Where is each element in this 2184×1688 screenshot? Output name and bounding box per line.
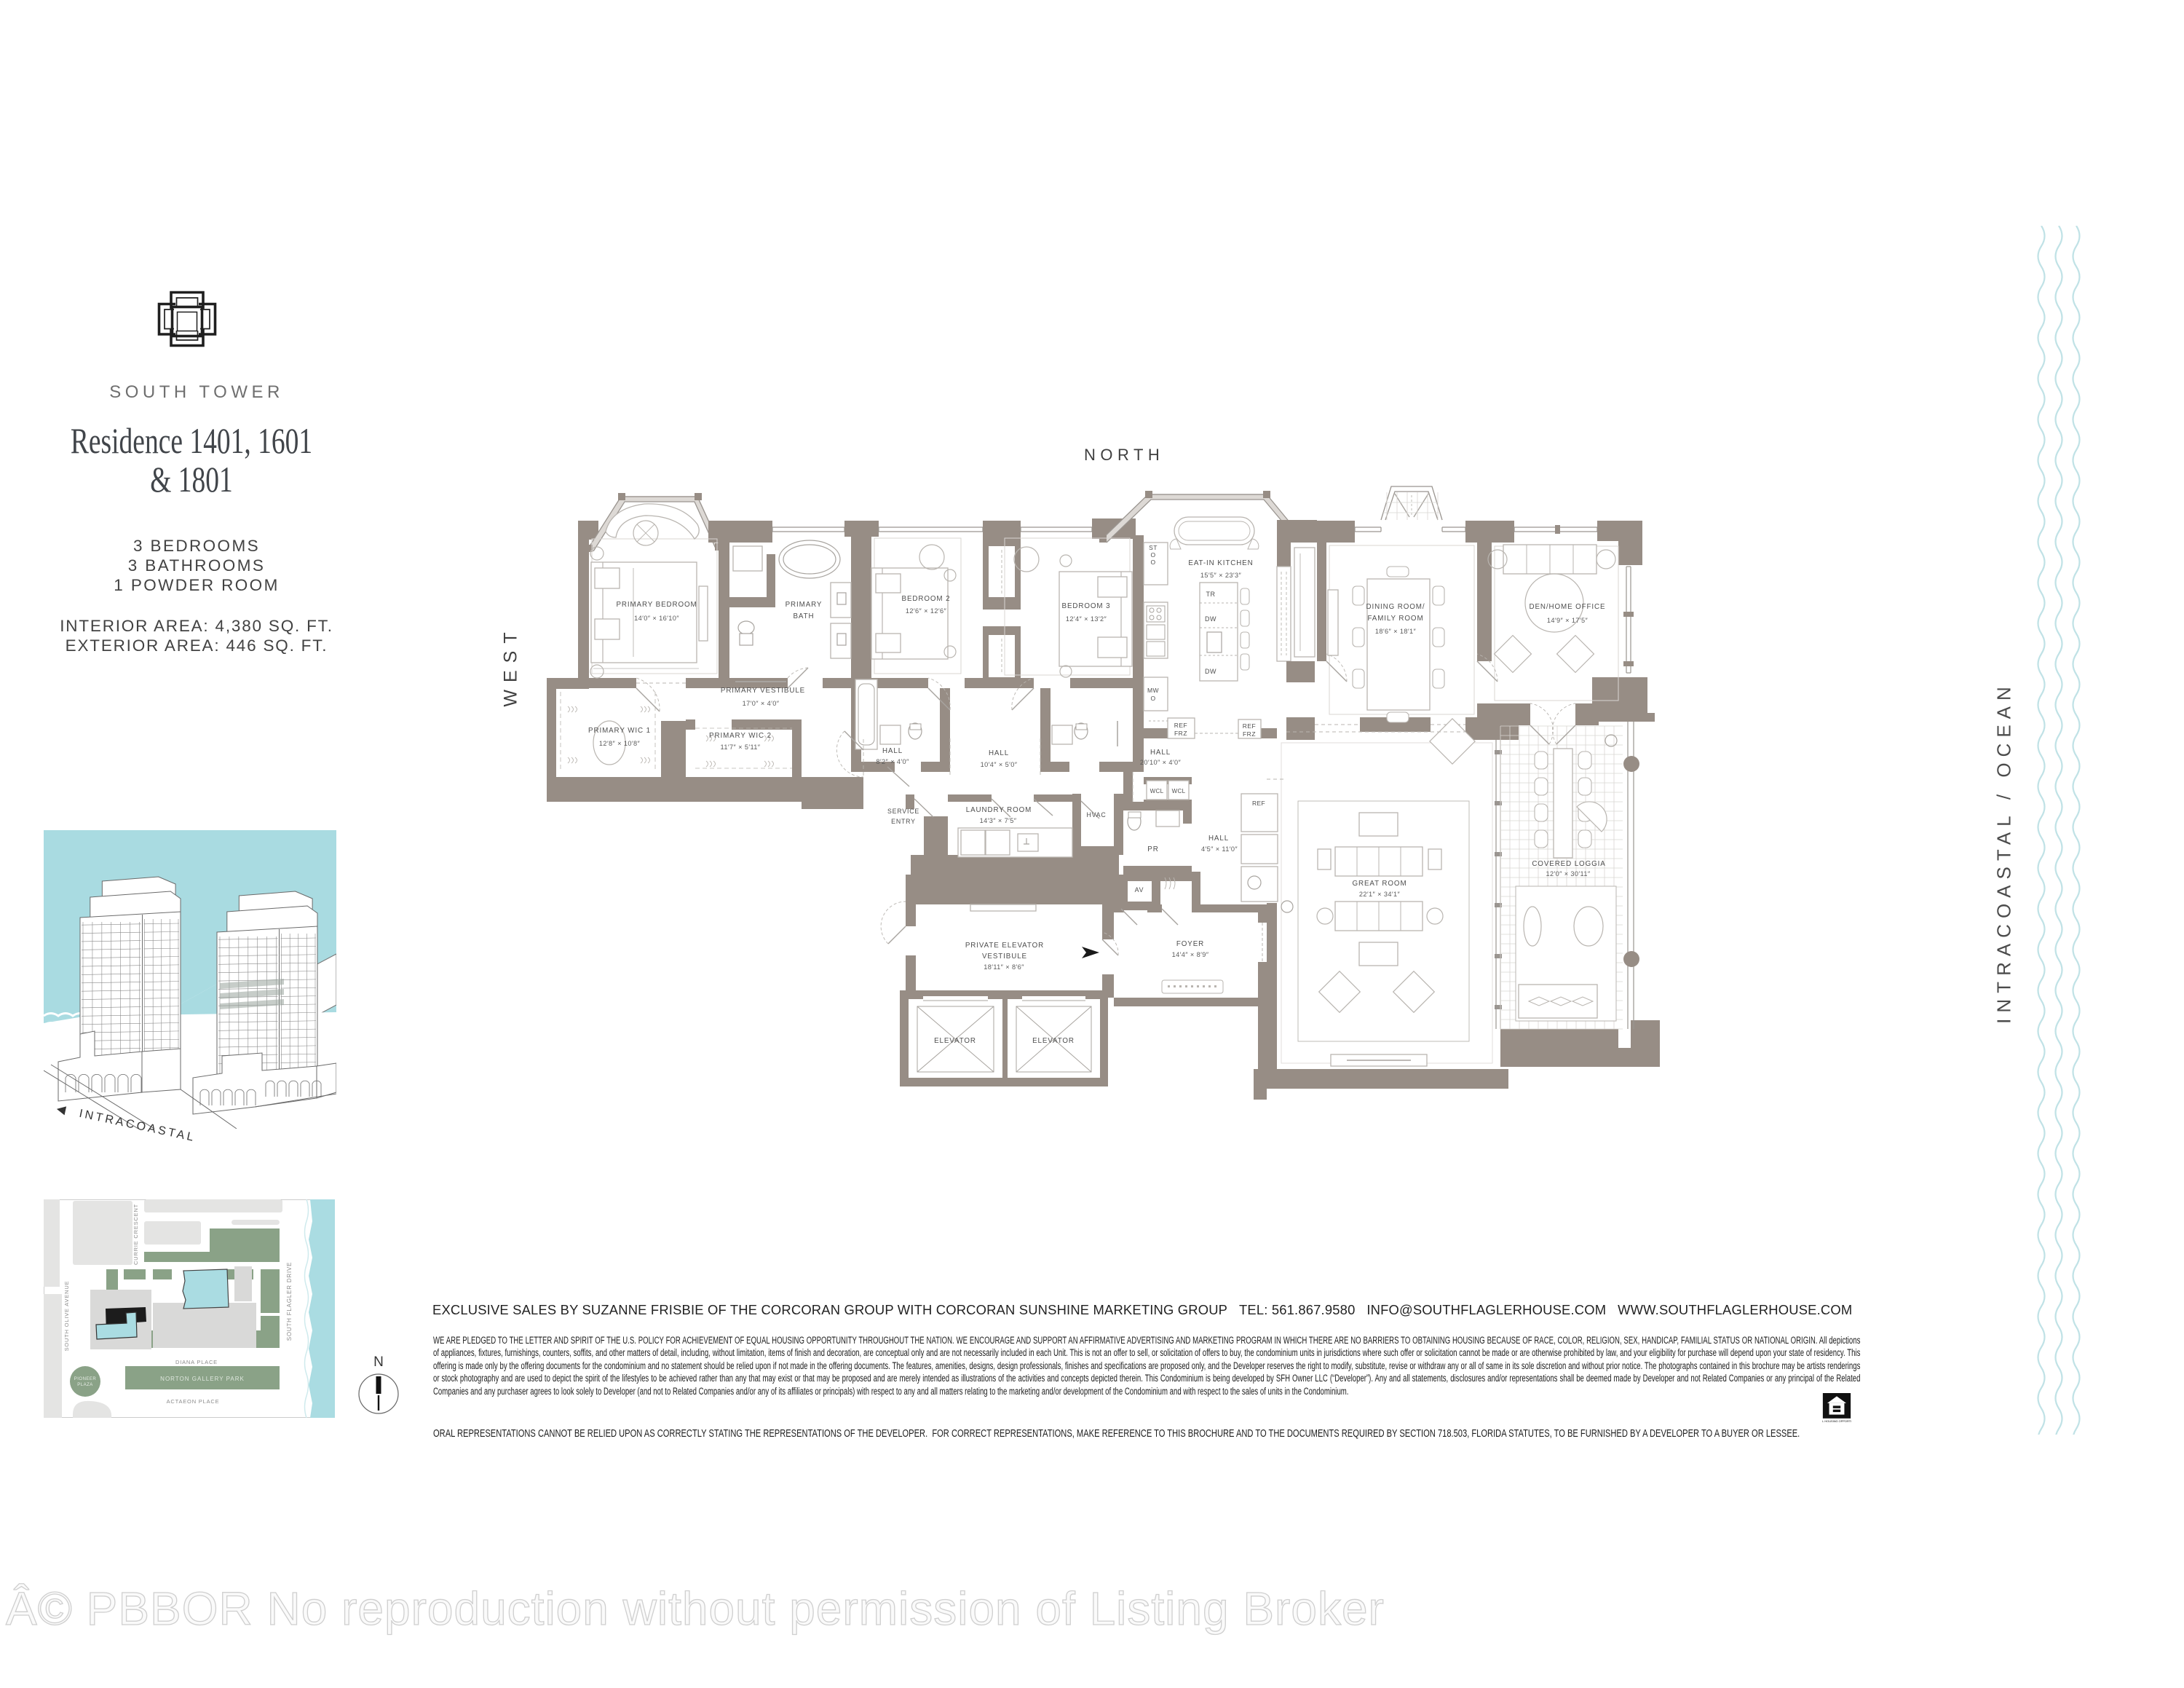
svg-text:8′2″ × 4′0″: 8′2″ × 4′0″ — [876, 758, 909, 765]
svg-text:O: O — [1150, 551, 1155, 559]
svg-text:ENTRY: ENTRY — [891, 818, 916, 825]
svg-text:12′4″ × 13′2″: 12′4″ × 13′2″ — [1066, 615, 1107, 623]
svg-text:PRIMARY VESTIBULE: PRIMARY VESTIBULE — [721, 687, 805, 695]
svg-text:4′5″ × 11′0″: 4′5″ × 11′0″ — [1201, 845, 1238, 853]
svg-text:DW: DW — [1205, 668, 1216, 675]
svg-text:HALL: HALL — [882, 747, 903, 755]
svg-text:22′1″ × 34′1″: 22′1″ × 34′1″ — [1359, 891, 1401, 898]
svg-text:10′4″ × 5′0″: 10′4″ × 5′0″ — [981, 761, 1018, 768]
svg-text:DEN/HOME OFFICE: DEN/HOME OFFICE — [1530, 603, 1606, 611]
svg-text:REF: REF — [1174, 722, 1188, 729]
svg-text:WCL: WCL — [1172, 788, 1186, 794]
svg-text:DINING ROOM/: DINING ROOM/ — [1366, 603, 1425, 611]
svg-text:LAUNDRY ROOM: LAUNDRY ROOM — [966, 806, 1032, 814]
svg-text:CURRIE CRESCENT: CURRIE CRESCENT — [132, 1204, 139, 1265]
svg-text:14′0″ × 16′10″: 14′0″ × 16′10″ — [634, 615, 679, 622]
svg-text:11′7″ × 5′11″: 11′7″ × 5′11″ — [721, 744, 761, 751]
svg-text:14′3″ × 7′5″: 14′3″ × 7′5″ — [980, 817, 1017, 824]
svg-text:PRIMARY BEDROOM: PRIMARY BEDROOM — [616, 601, 697, 609]
svg-text:HVAC: HVAC — [1087, 811, 1107, 819]
svg-text:SOUTH FLAGLER DRIVE: SOUTH FLAGLER DRIVE — [286, 1262, 293, 1341]
svg-text:O: O — [1150, 695, 1155, 702]
svg-text:20′10″ × 4′0″: 20′10″ × 4′0″ — [1140, 759, 1182, 766]
svg-text:12′6″ × 12′6″: 12′6″ × 12′6″ — [906, 607, 947, 615]
svg-text:WCL: WCL — [1150, 788, 1164, 794]
svg-text:PR: PR — [1147, 845, 1158, 853]
svg-text:FRZ: FRZ — [1243, 730, 1256, 738]
svg-text:VESTIBULE: VESTIBULE — [982, 953, 1027, 961]
svg-text:EAT-IN KITCHEN: EAT-IN KITCHEN — [1188, 559, 1253, 567]
svg-text:HALL: HALL — [1150, 749, 1171, 757]
svg-text:N: N — [373, 1354, 384, 1370]
svg-text:FOYER: FOYER — [1176, 940, 1204, 948]
svg-text:PRIMARY: PRIMARY — [786, 601, 823, 609]
svg-text:PIONEER: PIONEER — [74, 1377, 97, 1381]
svg-text:SOUTH OLIVE AVENUE: SOUTH OLIVE AVENUE — [63, 1281, 70, 1352]
svg-text:REF: REF — [1243, 722, 1257, 730]
svg-text:18′6″ × 18′1″: 18′6″ × 18′1″ — [1375, 628, 1417, 635]
svg-text:BEDROOM 2: BEDROOM 2 — [902, 595, 951, 603]
svg-text:HALL: HALL — [989, 749, 1009, 757]
svg-text:14′9″ × 17′5″: 14′9″ × 17′5″ — [1547, 617, 1588, 624]
svg-text:HALL: HALL — [1208, 835, 1229, 843]
svg-text:BATH: BATH — [793, 612, 814, 620]
svg-text:COVERED LOGGIA: COVERED LOGGIA — [1532, 860, 1605, 868]
svg-text:FRZ: FRZ — [1174, 730, 1187, 737]
svg-text:17′0″ × 4′0″: 17′0″ × 4′0″ — [743, 700, 780, 707]
svg-text:GREAT ROOM: GREAT ROOM — [1352, 880, 1406, 888]
svg-text:O: O — [1150, 559, 1155, 566]
svg-text:ST: ST — [1149, 544, 1158, 551]
svg-text:NORTON GALLERY PARK: NORTON GALLERY PARK — [160, 1376, 245, 1382]
svg-text:PLAZA: PLAZA — [77, 1383, 93, 1387]
svg-text:BEDROOM 3: BEDROOM 3 — [1062, 602, 1111, 610]
svg-text:ELEVATOR: ELEVATOR — [1032, 1037, 1075, 1045]
svg-text:PRIVATE ELEVATOR: PRIVATE ELEVATOR — [965, 942, 1044, 950]
svg-text:12′8″ × 10′8″: 12′8″ × 10′8″ — [599, 740, 641, 747]
svg-text:ACTAEON PLACE: ACTAEON PLACE — [167, 1398, 220, 1405]
svg-text:12′0″ × 30′11″: 12′0″ × 30′11″ — [1546, 870, 1590, 877]
svg-text:AV: AV — [1135, 886, 1144, 894]
svg-text:DW: DW — [1205, 615, 1216, 623]
svg-text:TR: TR — [1206, 591, 1216, 598]
svg-text:18′11″ × 8′6″: 18′11″ × 8′6″ — [984, 963, 1024, 971]
svg-text:SERVICE: SERVICE — [887, 808, 919, 815]
svg-text:14′4″ × 8′9″: 14′4″ × 8′9″ — [1172, 951, 1209, 958]
svg-text:15′5″ × 23′3″: 15′5″ × 23′3″ — [1200, 572, 1242, 579]
svg-text:DIANA PLACE: DIANA PLACE — [175, 1359, 218, 1365]
svg-text:PRIMARY WIC 2: PRIMARY WIC 2 — [709, 732, 772, 740]
svg-text:FAMILY ROOM: FAMILY ROOM — [1367, 615, 1423, 623]
svg-text:ELEVATOR: ELEVATOR — [934, 1037, 976, 1045]
svg-text:EQUAL HOUSING OPPORTUNITY: EQUAL HOUSING OPPORTUNITY — [1822, 1419, 1851, 1423]
svg-text:MW: MW — [1147, 687, 1159, 694]
svg-text:REF: REF — [1252, 800, 1265, 807]
svg-text:PRIMARY WIC 1: PRIMARY WIC 1 — [588, 727, 651, 735]
